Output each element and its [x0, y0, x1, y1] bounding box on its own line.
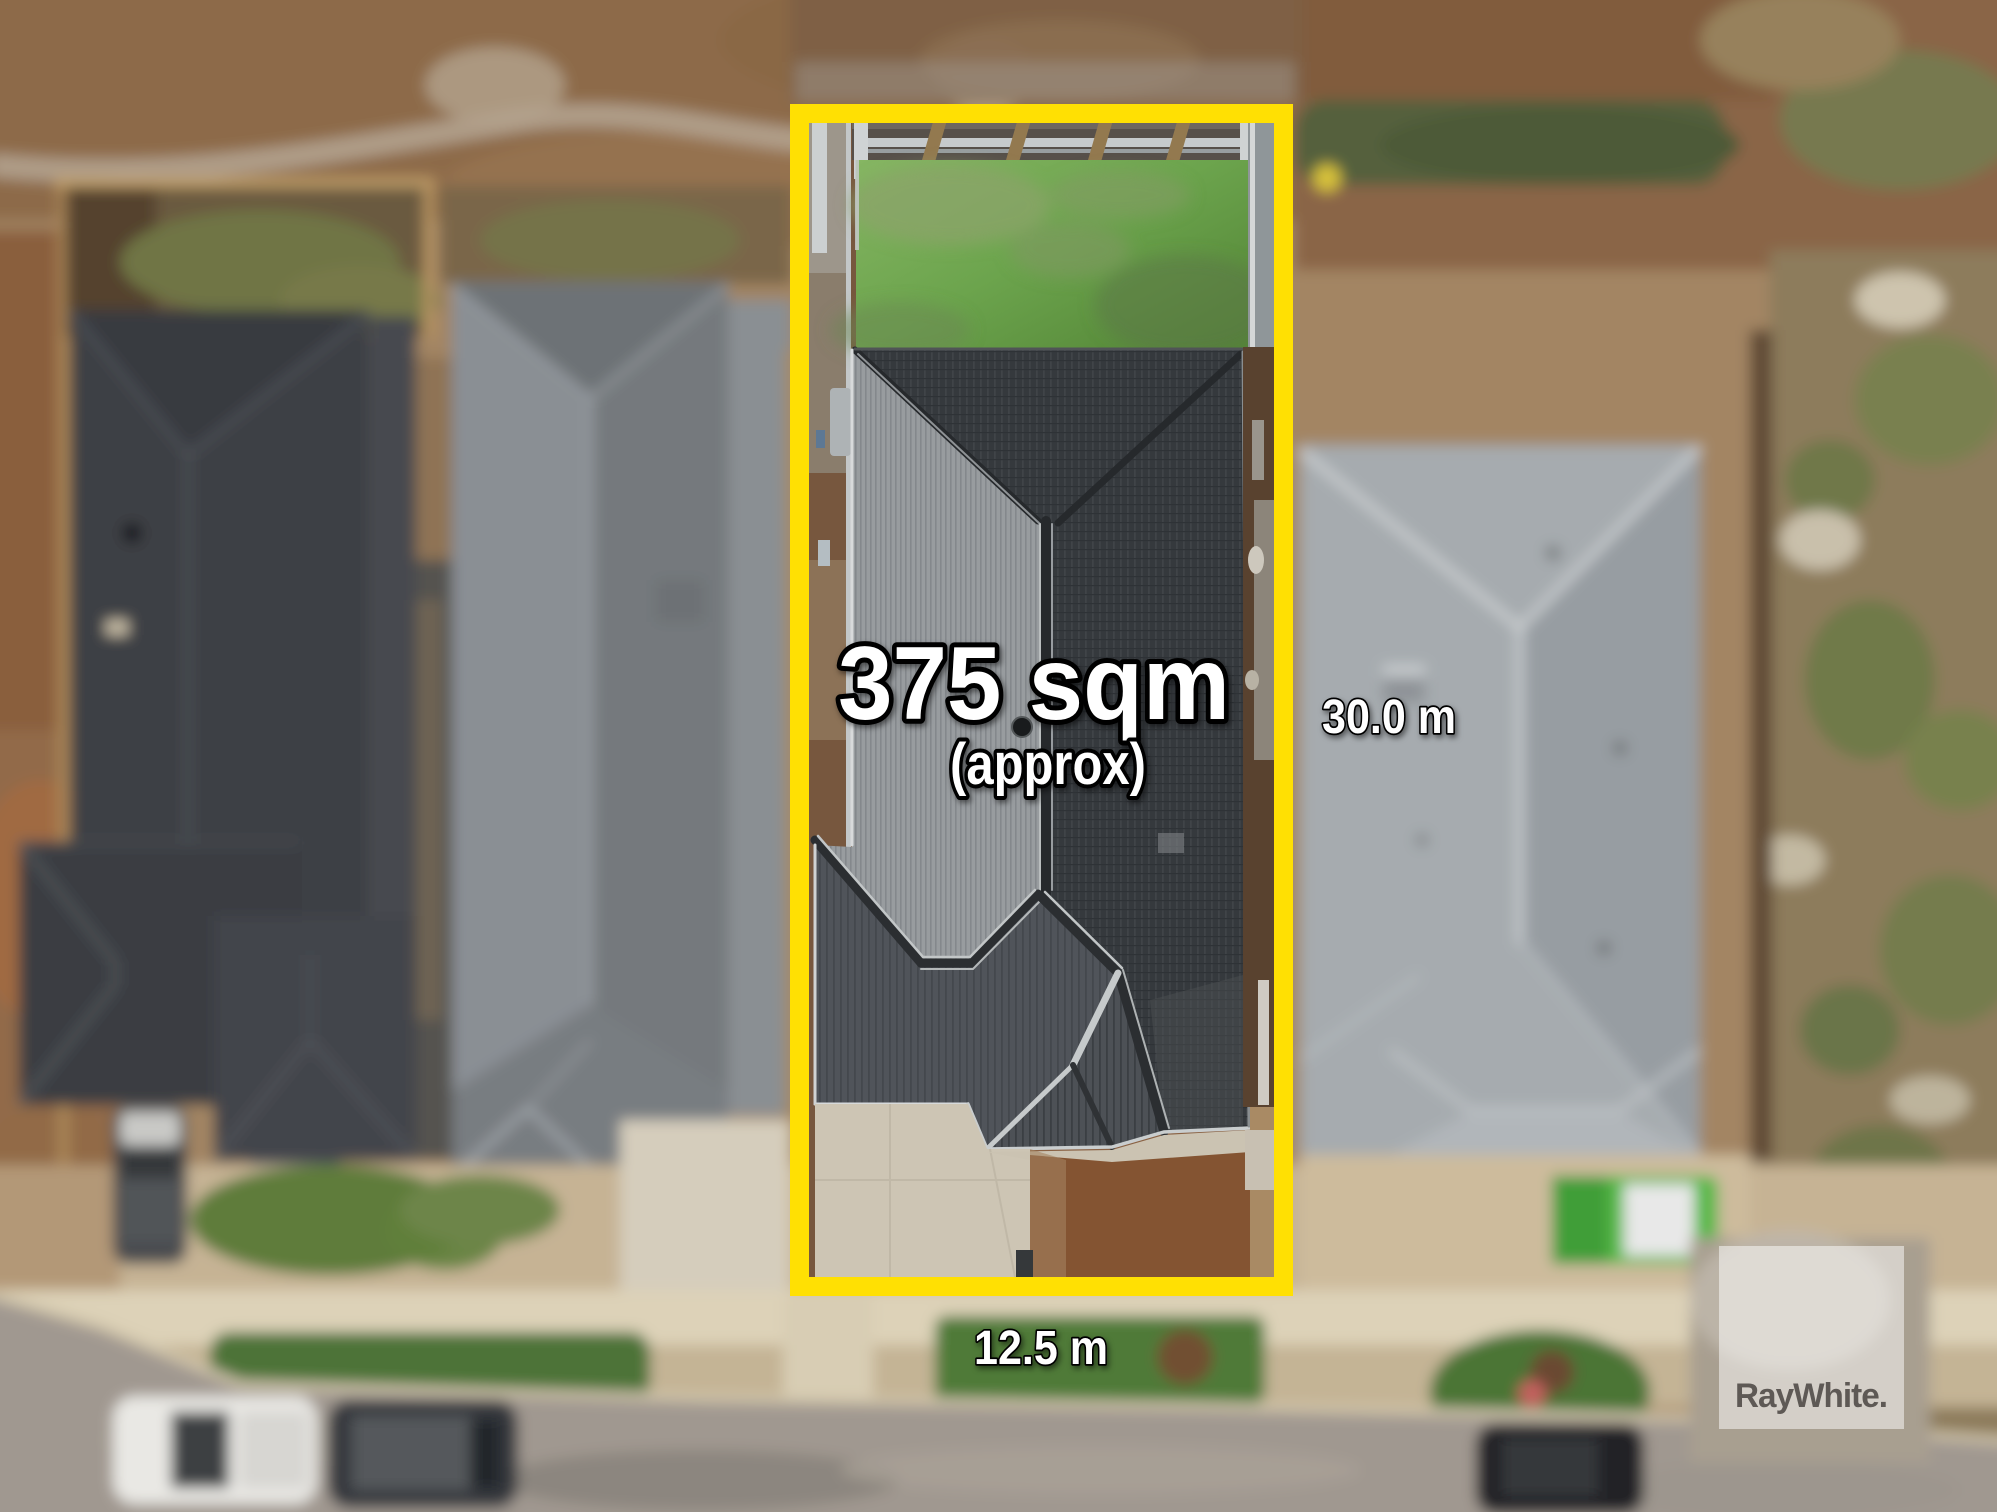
svg-text:30.0 m: 30.0 m [1322, 691, 1456, 744]
svg-text:(approx): (approx) [950, 732, 1146, 797]
svg-text:12.5 m: 12.5 m [974, 1322, 1108, 1375]
svg-text:375 sqm: 375 sqm [838, 626, 1230, 742]
svg-text:RayWhite.: RayWhite. [1735, 1377, 1887, 1415]
